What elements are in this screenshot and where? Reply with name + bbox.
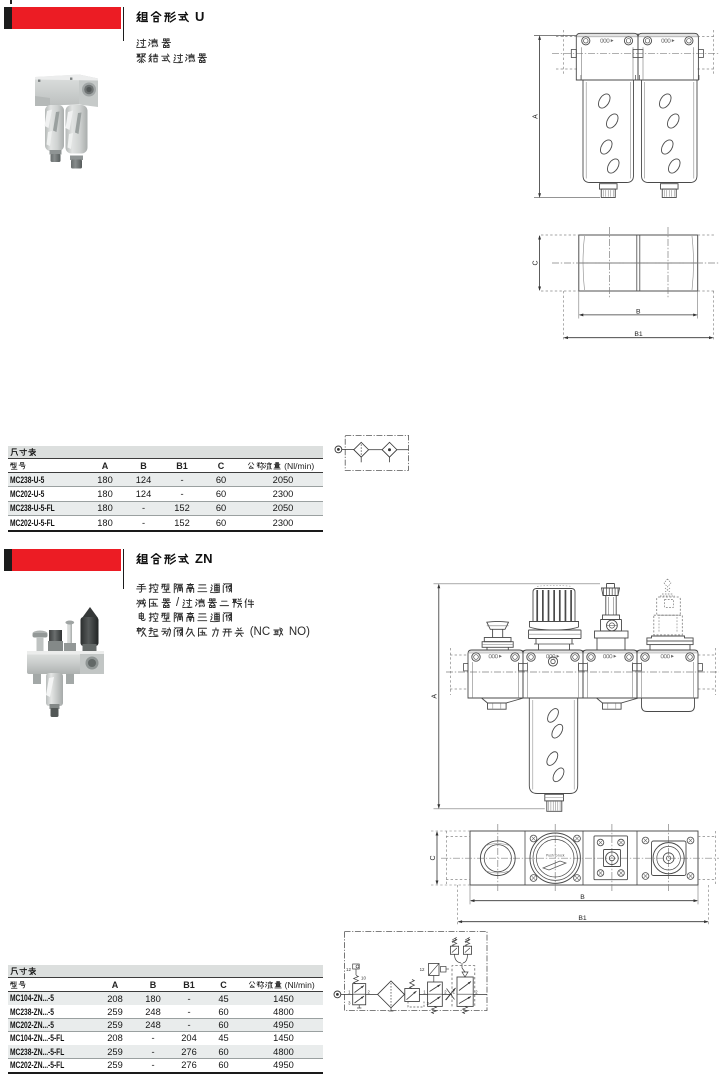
svg-text:12: 12 <box>346 967 351 972</box>
svg-text:1: 1 <box>423 989 426 994</box>
svg-text:1: 1 <box>348 989 351 994</box>
svg-text:B1: B1 <box>578 915 587 922</box>
svg-text:10: 10 <box>361 976 366 981</box>
svg-text:A: A <box>532 114 539 119</box>
svg-text:C: C <box>532 260 539 265</box>
svg-text:2: 2 <box>444 989 447 994</box>
svg-text:C: C <box>430 855 437 860</box>
svg-text:2: 2 <box>475 989 478 994</box>
svg-text:Push to lock: Push to lock <box>546 854 565 858</box>
svg-text:B1: B1 <box>634 331 643 338</box>
svg-text:2: 2 <box>368 989 371 994</box>
svg-text:1: 1 <box>453 989 456 994</box>
svg-text:3: 3 <box>348 1001 351 1006</box>
svg-text:B: B <box>580 894 585 901</box>
svg-text:12: 12 <box>420 967 425 972</box>
svg-text:3: 3 <box>427 1001 430 1006</box>
svg-text:B: B <box>636 308 641 315</box>
svg-text:A: A <box>432 694 439 699</box>
